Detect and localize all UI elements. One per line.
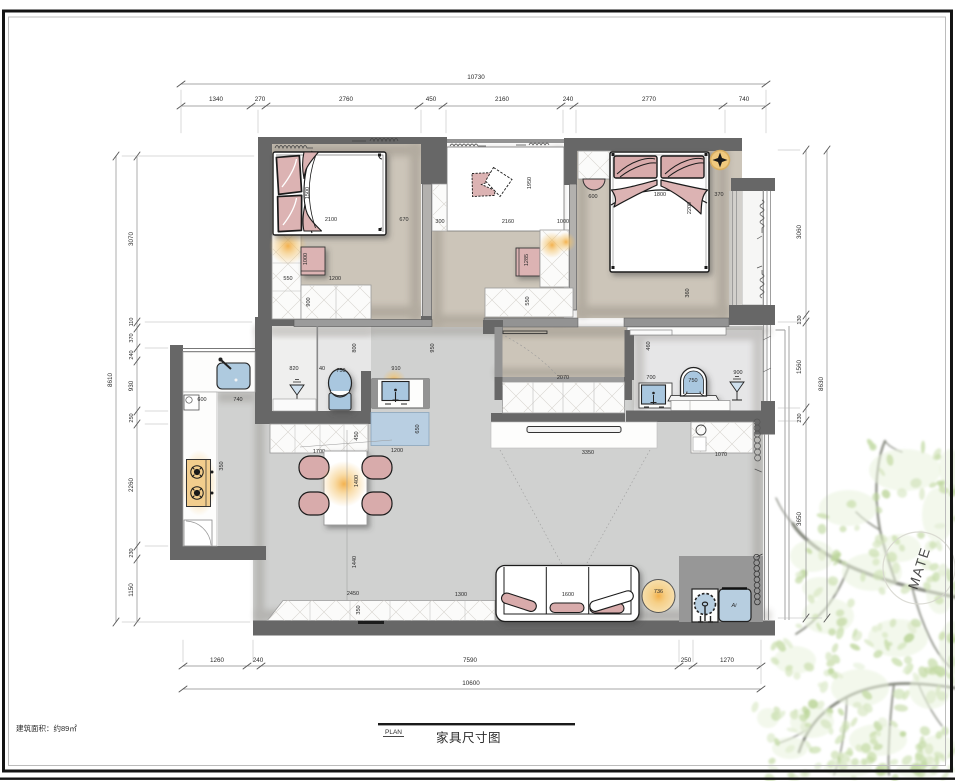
svg-text:250: 250 xyxy=(681,657,692,664)
svg-text:230: 230 xyxy=(129,548,135,557)
svg-text:950: 950 xyxy=(430,343,436,352)
svg-text:1950: 1950 xyxy=(527,177,533,189)
svg-text:740: 740 xyxy=(739,96,750,103)
svg-text:1260: 1260 xyxy=(210,657,225,664)
svg-text:350: 350 xyxy=(219,461,225,470)
svg-text:1700: 1700 xyxy=(313,449,325,455)
svg-text:460: 460 xyxy=(646,341,652,350)
svg-text:370: 370 xyxy=(714,192,723,198)
svg-text:670: 670 xyxy=(399,217,408,223)
svg-text:2200: 2200 xyxy=(687,202,693,214)
svg-text:家具尺寸图: 家具尺寸图 xyxy=(436,730,501,745)
svg-text:建筑面积：约89㎡: 建筑面积：约89㎡ xyxy=(16,723,77,733)
svg-text:3350: 3350 xyxy=(582,450,594,456)
svg-text:1070: 1070 xyxy=(715,452,727,458)
svg-text:930: 930 xyxy=(128,380,135,391)
svg-text:750: 750 xyxy=(688,378,697,384)
svg-text:900: 900 xyxy=(306,297,312,306)
svg-text:270: 270 xyxy=(255,96,266,103)
svg-text:450: 450 xyxy=(354,431,360,440)
svg-text:8630: 8630 xyxy=(818,377,825,392)
svg-text:750: 750 xyxy=(336,368,345,374)
svg-text:3070: 3070 xyxy=(128,232,135,247)
svg-text:Ai: Ai xyxy=(731,603,738,609)
svg-text:550: 550 xyxy=(283,276,292,282)
svg-text:736: 736 xyxy=(654,589,663,595)
svg-text:820: 820 xyxy=(289,366,298,372)
svg-text:2260: 2260 xyxy=(128,478,135,493)
svg-text:1200: 1200 xyxy=(391,448,403,454)
svg-text:740: 740 xyxy=(233,397,242,403)
svg-text:250: 250 xyxy=(129,413,135,422)
svg-text:1285: 1285 xyxy=(524,254,530,266)
svg-text:2760: 2760 xyxy=(339,96,354,103)
svg-text:1440: 1440 xyxy=(352,556,358,568)
svg-text:2160: 2160 xyxy=(502,219,514,225)
svg-text:7590: 7590 xyxy=(463,657,478,664)
svg-text:10730: 10730 xyxy=(467,74,485,81)
svg-text:PLAN: PLAN xyxy=(385,729,402,736)
svg-text:360: 360 xyxy=(685,288,691,297)
svg-text:130: 130 xyxy=(797,315,803,324)
svg-text:2450: 2450 xyxy=(347,591,359,597)
svg-text:240: 240 xyxy=(129,350,135,359)
svg-text:3650: 3650 xyxy=(796,512,803,527)
svg-text:450: 450 xyxy=(426,96,437,103)
svg-text:1560: 1560 xyxy=(796,360,803,375)
svg-text:10600: 10600 xyxy=(462,680,480,687)
svg-text:2100: 2100 xyxy=(325,217,337,223)
svg-text:1270: 1270 xyxy=(720,657,735,664)
svg-text:3060: 3060 xyxy=(796,225,803,240)
svg-text:1800: 1800 xyxy=(654,192,666,198)
svg-text:600: 600 xyxy=(588,194,597,200)
svg-text:350: 350 xyxy=(356,605,362,614)
svg-text:8610: 8610 xyxy=(107,373,114,388)
svg-text:1600: 1600 xyxy=(562,592,574,598)
svg-text:1200: 1200 xyxy=(329,276,341,282)
svg-text:600: 600 xyxy=(197,397,206,403)
svg-text:1000: 1000 xyxy=(557,219,569,225)
svg-text:900: 900 xyxy=(733,370,742,376)
svg-text:650: 650 xyxy=(415,424,421,433)
svg-text:700: 700 xyxy=(646,375,655,381)
svg-text:110: 110 xyxy=(129,318,135,327)
svg-text:910: 910 xyxy=(391,366,400,372)
svg-text:2160: 2160 xyxy=(495,96,510,103)
svg-text:1300: 1300 xyxy=(455,592,467,598)
svg-text:40: 40 xyxy=(319,366,325,372)
svg-text:800: 800 xyxy=(352,343,358,352)
svg-text:370: 370 xyxy=(129,333,135,342)
svg-text:1000: 1000 xyxy=(303,253,309,265)
svg-text:1500: 1500 xyxy=(305,187,311,199)
svg-text:240: 240 xyxy=(253,657,264,664)
svg-text:240: 240 xyxy=(563,96,574,103)
svg-text:1340: 1340 xyxy=(209,96,224,103)
svg-text:2070: 2070 xyxy=(557,375,569,381)
svg-text:1150: 1150 xyxy=(128,583,135,597)
svg-text:300: 300 xyxy=(435,219,444,225)
svg-text:1400: 1400 xyxy=(354,475,360,487)
svg-text:2770: 2770 xyxy=(642,96,657,103)
svg-text:550: 550 xyxy=(525,296,531,305)
